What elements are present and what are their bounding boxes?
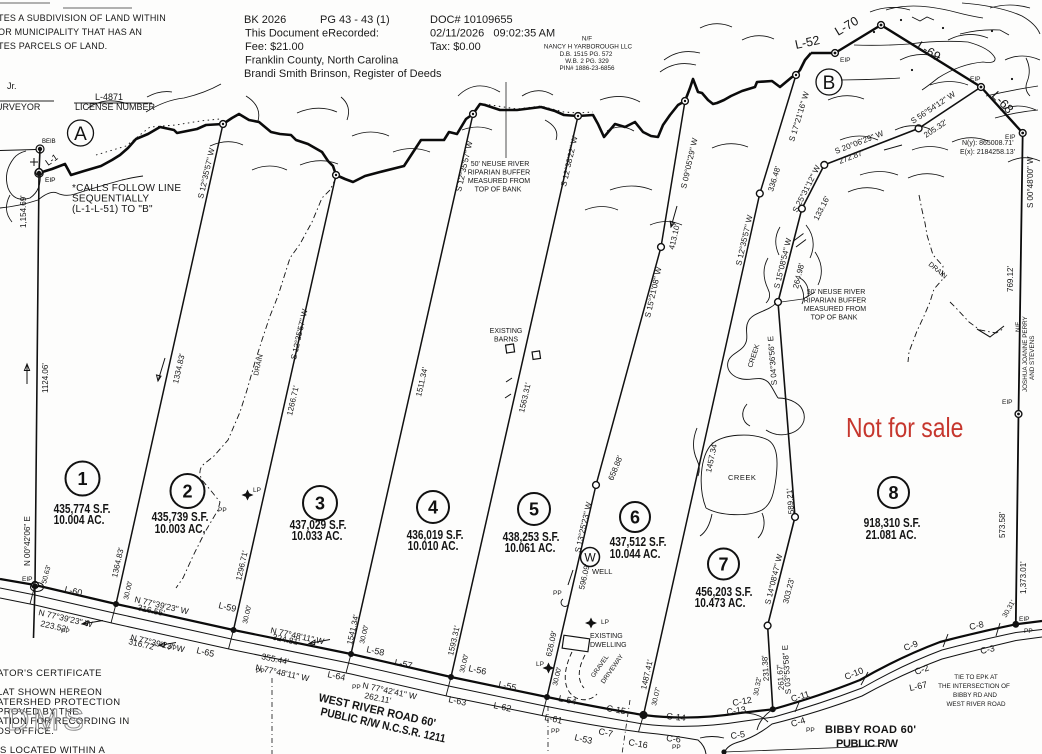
- svg-text:769.12': 769.12': [1006, 266, 1015, 292]
- svg-text:02/11/2026 09:02:35 AM: 02/11/2026 09:02:35 AM: [430, 28, 555, 40]
- svg-text:S 00°48'00" W: S 00°48'00" W: [1026, 156, 1035, 208]
- svg-text:IS LOCATED WITHIN A: IS LOCATED WITHIN A: [0, 745, 106, 754]
- svg-text:PP: PP: [551, 728, 560, 735]
- svg-text:TOP OF BANK: TOP OF BANK: [475, 187, 522, 194]
- svg-text:PP: PP: [168, 645, 177, 652]
- svg-text:EIP: EIP: [1002, 399, 1012, 406]
- svg-text:W.B. 2 PG. 329: W.B. 2 PG. 329: [565, 58, 609, 65]
- svg-text:PP: PP: [218, 507, 227, 514]
- svg-text:B: B: [823, 73, 836, 94]
- svg-text:10.033 AC.: 10.033 AC.: [292, 529, 343, 543]
- svg-text:573.58': 573.58': [998, 512, 1007, 538]
- svg-text:BARNS: BARNS: [494, 337, 518, 344]
- svg-text:10.004 AC.: 10.004 AC.: [54, 513, 105, 527]
- svg-text:1: 1: [77, 469, 87, 489]
- svg-text:C-5: C-5: [730, 729, 746, 741]
- svg-text:EIP: EIP: [1019, 616, 1029, 623]
- svg-text:Franklin County, North Carolin: Franklin County, North Carolina: [245, 55, 399, 67]
- svg-text:N/F: N/F: [1015, 322, 1022, 332]
- svg-text:TES A SUBDIVISION OF LAND WITH: TES A SUBDIVISION OF LAND WITHIN: [0, 13, 166, 23]
- svg-text:BIBBY RD AND: BIBBY RD AND: [953, 692, 997, 699]
- svg-text:EIP: EIP: [840, 57, 850, 64]
- svg-text:10.061 AC.: 10.061 AC.: [505, 541, 556, 555]
- svg-text:PG 43 - 43 (1): PG 43 - 43 (1): [320, 14, 390, 26]
- svg-text:PP: PP: [553, 590, 562, 597]
- svg-text:This Document eRecorded:: This Document eRecorded:: [245, 28, 379, 40]
- svg-text:DMS: DMS: [7, 702, 88, 737]
- svg-text:THE INTERSECTION OF: THE INTERSECTION OF: [938, 683, 1010, 690]
- svg-text:WELL: WELL: [592, 567, 612, 576]
- svg-text:N/F: N/F: [582, 36, 592, 43]
- svg-text:10.010 AC.: 10.010 AC.: [408, 539, 459, 553]
- svg-text:BK 2026: BK 2026: [244, 14, 286, 26]
- svg-text:Fee: $21.00: Fee: $21.00: [245, 41, 304, 53]
- svg-text:AND STEVENS: AND STEVENS: [1029, 336, 1036, 380]
- svg-text:JOSHUA JOANNE PERRY: JOSHUA JOANNE PERRY: [1022, 315, 1029, 392]
- svg-text:PIN# 1886-23-6856: PIN# 1886-23-6856: [560, 65, 615, 72]
- svg-text:Tax: $0.00: Tax: $0.00: [430, 41, 481, 53]
- svg-text:4: 4: [428, 498, 438, 518]
- svg-text:URVEYOR: URVEYOR: [0, 102, 41, 112]
- svg-text:MEASURED FROM: MEASURED FROM: [468, 178, 530, 185]
- svg-text:SEQUENTIALLY: SEQUENTIALLY: [72, 194, 149, 205]
- svg-text:RIPARIAN BUFFER: RIPARIAN BUFFER: [468, 170, 531, 177]
- svg-text:PP: PP: [61, 628, 70, 635]
- svg-text:NANCY H YARBOROUGH LLC: NANCY H YARBOROUGH LLC: [544, 44, 633, 51]
- svg-text:PP: PP: [1024, 628, 1033, 635]
- svg-text:WEST RIVER ROAD: WEST RIVER ROAD: [946, 701, 1005, 708]
- svg-text:1,154.69': 1,154.69': [19, 195, 28, 228]
- svg-text:LP: LP: [253, 487, 261, 494]
- svg-text:50' NEUSE RIVER: 50' NEUSE RIVER: [471, 161, 530, 168]
- svg-text:EIP: EIP: [22, 576, 32, 583]
- svg-text:MEASURED FROM: MEASURED FROM: [804, 306, 866, 313]
- svg-text:50' NEUSE RIVER: 50' NEUSE RIVER: [807, 289, 866, 296]
- svg-text:5: 5: [529, 500, 539, 520]
- svg-text:1,373.01': 1,373.01': [1019, 561, 1028, 594]
- svg-text:DOC# 10109655: DOC# 10109655: [430, 14, 513, 26]
- svg-text:RIPARIAN BUFFER: RIPARIAN BUFFER: [804, 298, 867, 305]
- svg-text:1124.06': 1124.06': [41, 363, 50, 393]
- svg-text:BIBBY ROAD 60': BIBBY ROAD 60': [825, 724, 916, 736]
- svg-text:PP: PP: [256, 668, 265, 675]
- svg-text:DWELLING: DWELLING: [590, 642, 627, 649]
- svg-text:ATOR'S CERTIFICATE: ATOR'S CERTIFICATE: [0, 668, 102, 679]
- svg-text:21.081 AC.: 21.081 AC.: [866, 528, 917, 542]
- svg-text:7: 7: [718, 555, 728, 575]
- svg-text:10.473 AC.: 10.473 AC.: [695, 596, 746, 610]
- svg-text:EIP: EIP: [45, 177, 55, 184]
- svg-text:(L-1-L-51) TO "B": (L-1-L-51) TO "B": [72, 204, 153, 215]
- svg-text:Not for sale: Not for sale: [846, 413, 963, 444]
- svg-text:W: W: [584, 551, 596, 565]
- svg-text:231.38': 231.38': [760, 654, 771, 681]
- svg-text:10.003 AC.: 10.003 AC.: [155, 522, 206, 536]
- svg-text:D.B. 1515 PG. 572: D.B. 1515 PG. 572: [560, 51, 613, 58]
- svg-text:PP: PP: [806, 727, 815, 734]
- svg-text:PP: PP: [672, 744, 681, 751]
- svg-text:8: 8: [888, 483, 898, 503]
- svg-text:EXISTING: EXISTING: [590, 633, 623, 640]
- svg-text:10.044 AC.: 10.044 AC.: [610, 547, 661, 561]
- svg-text:A: A: [74, 124, 87, 145]
- svg-text:261.67': 261.67': [775, 663, 786, 690]
- svg-text:Brandi Smith Brinson, Register: Brandi Smith Brinson, Register of Deeds: [244, 68, 442, 80]
- svg-text:2: 2: [182, 482, 192, 502]
- svg-text:CREEK: CREEK: [728, 473, 756, 482]
- svg-text:PP: PP: [352, 684, 361, 691]
- svg-text:*CALLS FOLLOW LINE: *CALLS FOLLOW LINE: [72, 183, 181, 194]
- svg-text:C-6: C-6: [666, 733, 681, 744]
- svg-text:LP: LP: [601, 619, 609, 626]
- svg-text:TOP OF BANK: TOP OF BANK: [811, 315, 858, 322]
- svg-text:EIP: EIP: [970, 76, 980, 83]
- svg-text:TIE TO EPK AT: TIE TO EPK AT: [954, 674, 998, 681]
- svg-text:LP: LP: [536, 661, 544, 668]
- svg-text:C-14: C-14: [666, 711, 686, 723]
- svg-text:TES PARCELS OF LAND.: TES PARCELS OF LAND.: [0, 41, 107, 51]
- svg-text:PUBLIC R/W: PUBLIC R/W: [836, 738, 899, 750]
- svg-text:Jr.: Jr.: [7, 81, 17, 91]
- svg-text:3: 3: [315, 494, 325, 514]
- svg-text:LICENSE NUMBER: LICENSE NUMBER: [75, 102, 156, 112]
- svg-text:6: 6: [630, 508, 640, 528]
- svg-text:OR MUNICIPALITY THAT HAS AN: OR MUNICIPALITY THAT HAS AN: [0, 27, 142, 37]
- svg-text:N 00°42'06" E: N 00°42'06" E: [23, 516, 32, 566]
- svg-text:E(x): 2184258.13': E(x): 2184258.13': [960, 149, 1015, 156]
- svg-text:BEIB: BEIB: [42, 139, 56, 145]
- svg-text:EXISTING: EXISTING: [490, 328, 523, 335]
